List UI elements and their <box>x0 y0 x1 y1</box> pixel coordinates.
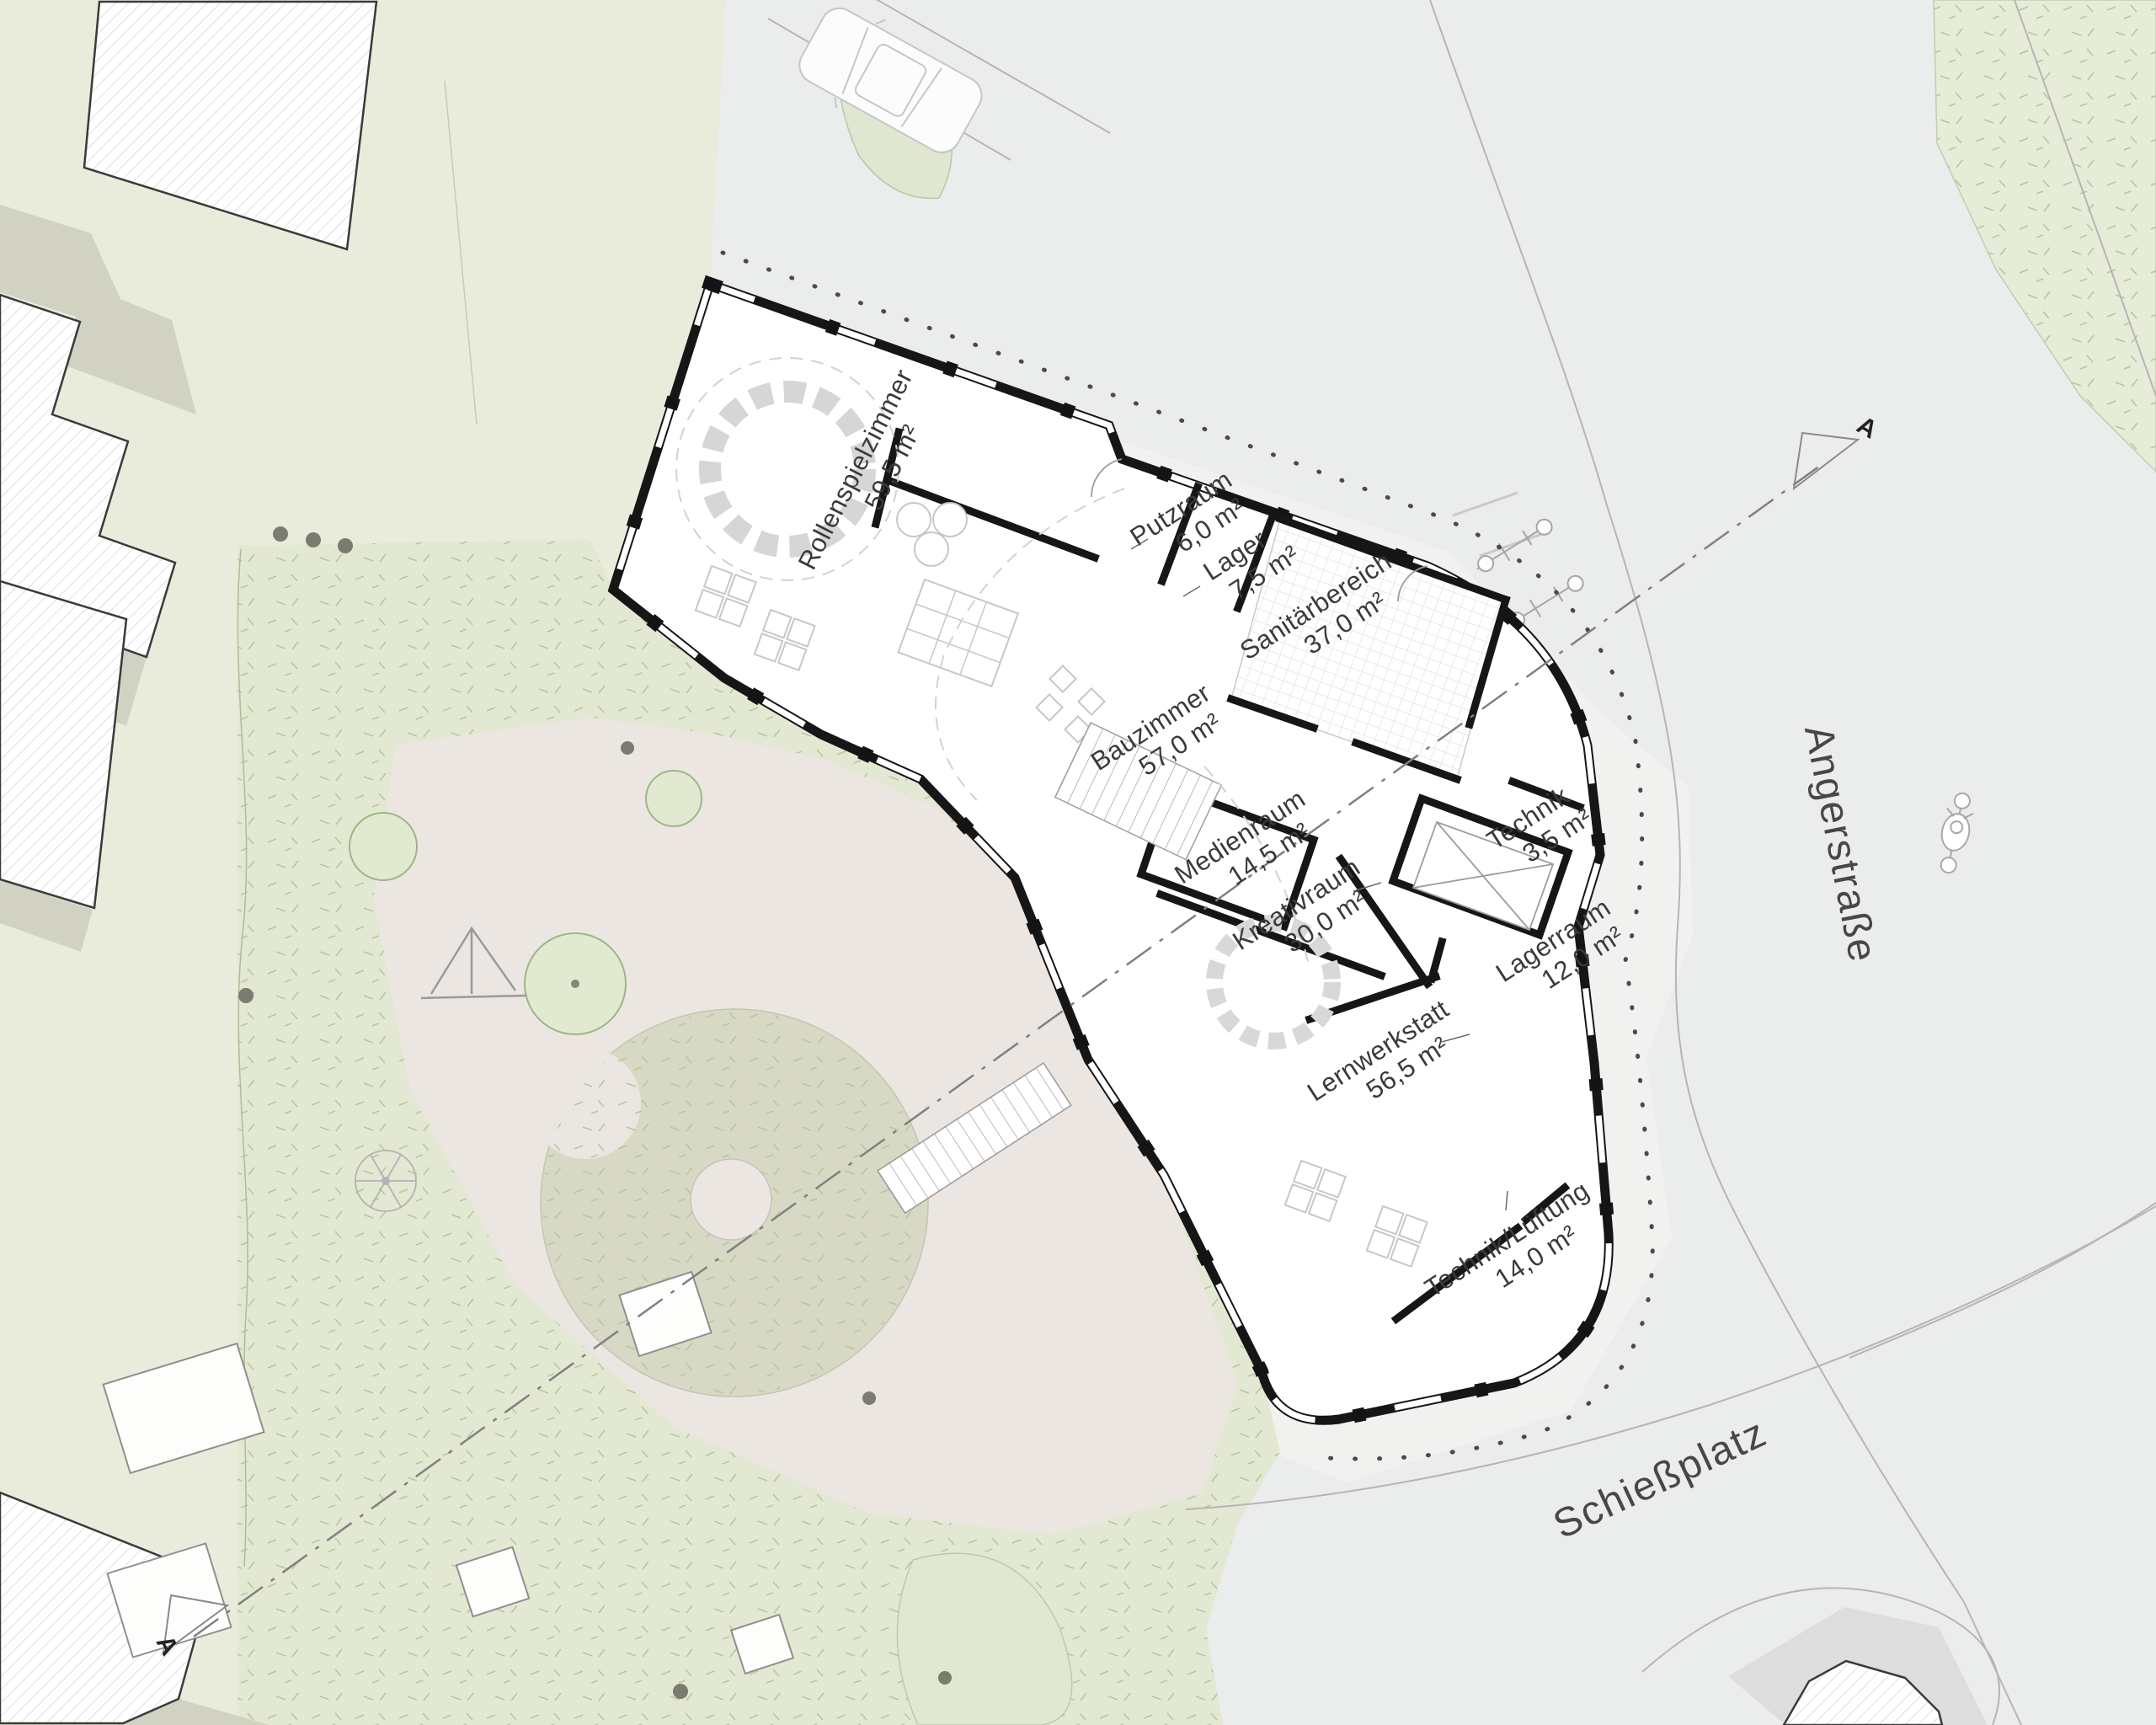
tree-small-1 <box>646 771 702 826</box>
tree-dot-3 <box>338 538 353 553</box>
mound-center-hole <box>691 1159 771 1240</box>
round-table-2 <box>933 503 967 537</box>
round-table-1 <box>897 503 931 537</box>
site-plan-page: A A Rollenspielzimmer 59,5 m² Putzraum 6… <box>0 0 2156 1725</box>
tree-trunk <box>571 980 579 988</box>
tree-dot-6 <box>862 1391 876 1405</box>
round-table-3 <box>915 532 948 566</box>
site-plan-canvas: A A Rollenspielzimmer 59,5 m² Putzraum 6… <box>0 0 2156 1725</box>
tree-dot-8 <box>938 1671 952 1685</box>
tree-dot-4 <box>621 741 634 755</box>
tree-dot-2 <box>306 532 321 547</box>
tree-dot-5 <box>238 988 253 1003</box>
tree-dot-7 <box>673 1684 688 1699</box>
tree-dot-1 <box>273 526 288 542</box>
tree-small-2 <box>350 813 417 880</box>
